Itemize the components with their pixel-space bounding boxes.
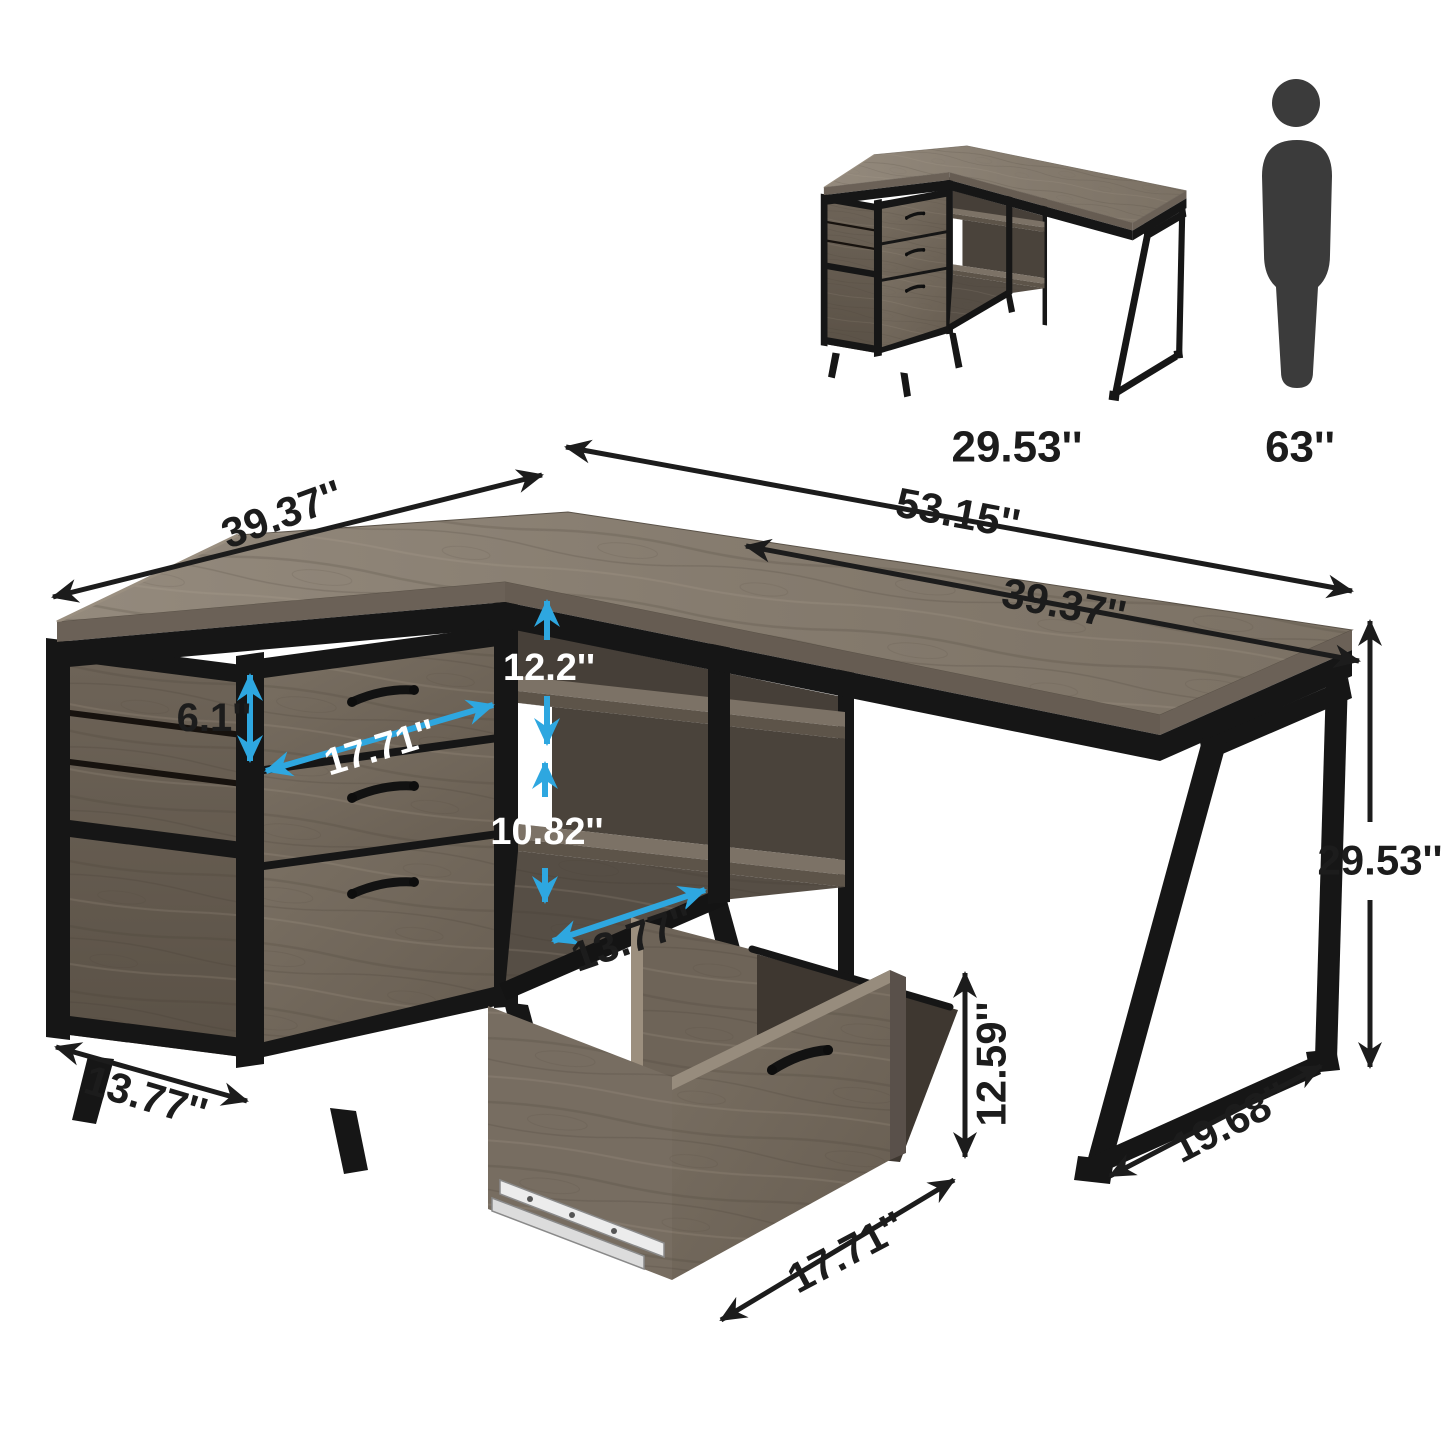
person-body xyxy=(1262,140,1332,388)
rail-screw xyxy=(527,1196,533,1202)
person-head xyxy=(1272,79,1320,127)
shelf-front-post xyxy=(708,642,730,904)
dim-top-drawer-height: 6.1'' xyxy=(177,696,252,740)
rail-screw xyxy=(611,1228,617,1234)
handle-mount xyxy=(347,697,357,707)
handle-mount xyxy=(767,1065,777,1075)
diagram-canvas: 53.15'' 39.37'' 39.37'' 6.1'' 17.71'' 12… xyxy=(0,0,1445,1445)
person-icon xyxy=(1262,79,1332,388)
dim-leg-base-depth: 19.68'' xyxy=(1164,1072,1297,1171)
handle-mount xyxy=(409,877,419,887)
handle-mount xyxy=(823,1045,833,1055)
person-height-label: 63'' xyxy=(1265,423,1335,472)
cabinet-foot xyxy=(330,1108,368,1174)
handle-mount xyxy=(409,781,419,791)
dim-desk-height: 29.53'' xyxy=(1317,837,1442,884)
thumbnail-desk: 29.53'' xyxy=(821,146,1187,472)
leg-foot xyxy=(1074,1156,1114,1184)
dim-upper-cubby-height: 12.2'' xyxy=(503,647,595,689)
dim-file-drawer-height: 12.59'' xyxy=(968,1001,1015,1126)
thumbnail-desk-image xyxy=(821,146,1187,401)
leg-front-bar xyxy=(1088,737,1227,1162)
product-dimension-diagram: 53.15'' 39.37'' 39.37'' 6.1'' 17.71'' 12… xyxy=(0,0,1445,1445)
handle-mount xyxy=(347,889,357,899)
handle-mount xyxy=(347,793,357,803)
dim-cabinet-depth: 13.77'' xyxy=(79,1056,212,1137)
dim-file-drawer-depth: 17.71'' xyxy=(780,1202,913,1302)
cabinet-left-post xyxy=(46,638,70,1040)
dim-total-width: 53.15'' xyxy=(892,478,1024,547)
handle-mount xyxy=(409,685,419,695)
thumbnail-desk-label: 29.53'' xyxy=(951,423,1082,472)
rail-screw xyxy=(569,1212,575,1218)
dim-lower-cubby-height: 10.82'' xyxy=(490,811,603,853)
drawer-right-edge xyxy=(890,970,906,1160)
